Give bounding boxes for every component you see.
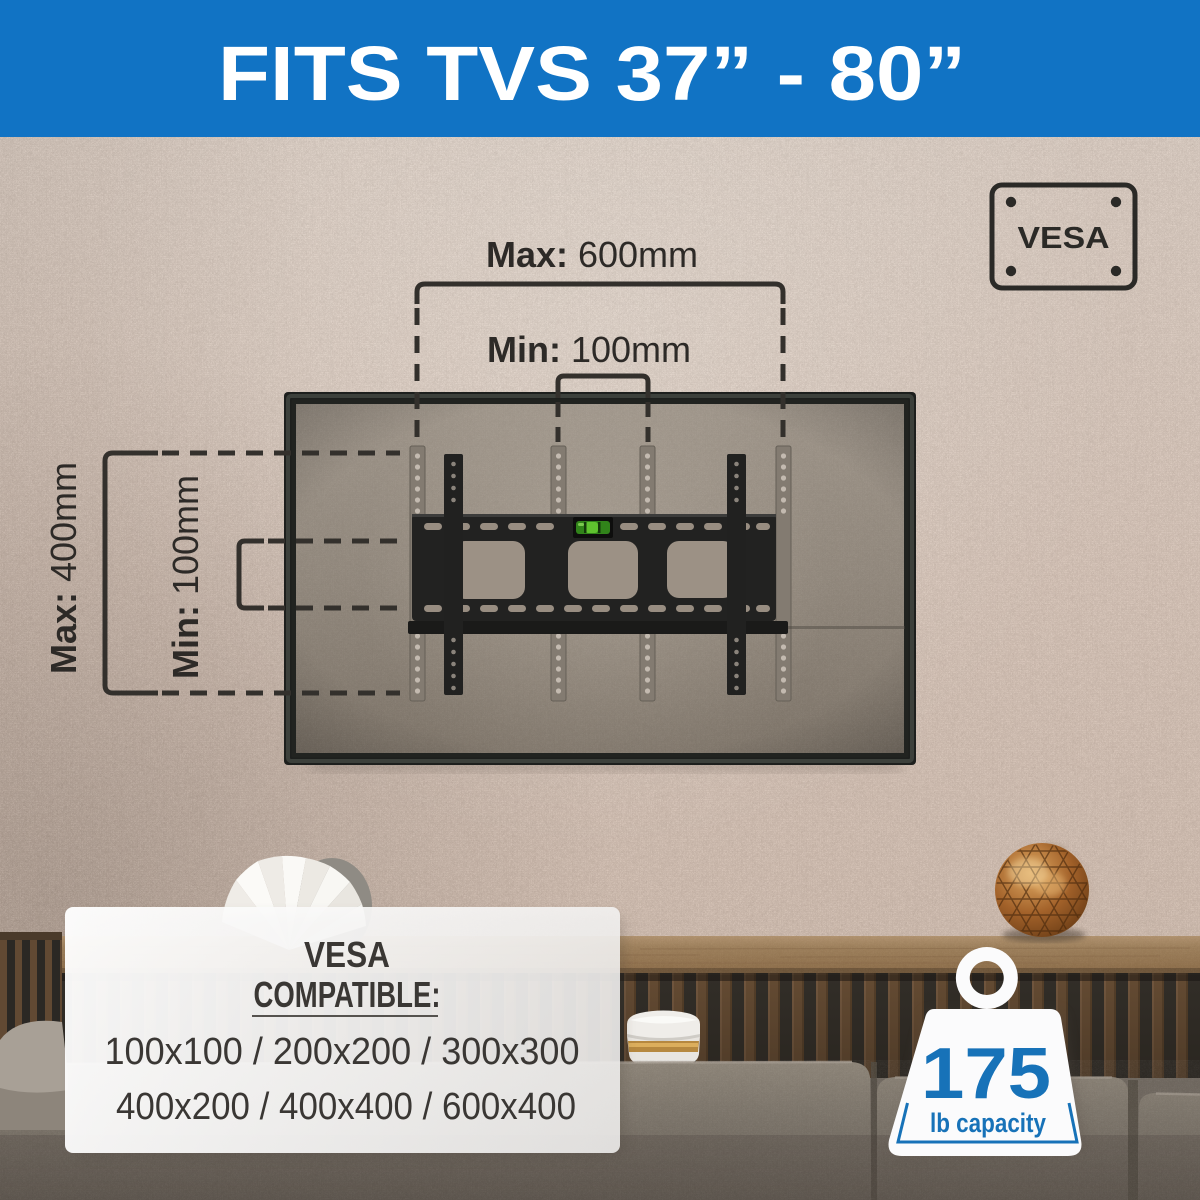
svg-text:400x200 / 400x400 / 600x400: 400x200 / 400x400 / 600x400 <box>116 1086 576 1128</box>
svg-text:VESA: VESA <box>304 934 390 975</box>
svg-text:Min: 100mm: Min: 100mm <box>165 475 206 679</box>
svg-text:Min: 100mm: Min: 100mm <box>487 329 691 370</box>
svg-text:175: 175 <box>921 1034 1051 1114</box>
svg-text:lb capacity: lb capacity <box>930 1108 1046 1138</box>
svg-text:100x100 / 200x200 / 300x300: 100x100 / 200x200 / 300x300 <box>105 1031 580 1073</box>
svg-text:COMPATIBLE:: COMPATIBLE: <box>254 974 441 1015</box>
svg-text:FITS TVS 37” - 80”: FITS TVS 37” - 80” <box>218 31 966 117</box>
svg-text:Max: 600mm: Max: 600mm <box>486 234 698 275</box>
svg-text:VESA: VESA <box>1018 220 1110 255</box>
svg-text:Max: 400mm: Max: 400mm <box>43 462 84 674</box>
